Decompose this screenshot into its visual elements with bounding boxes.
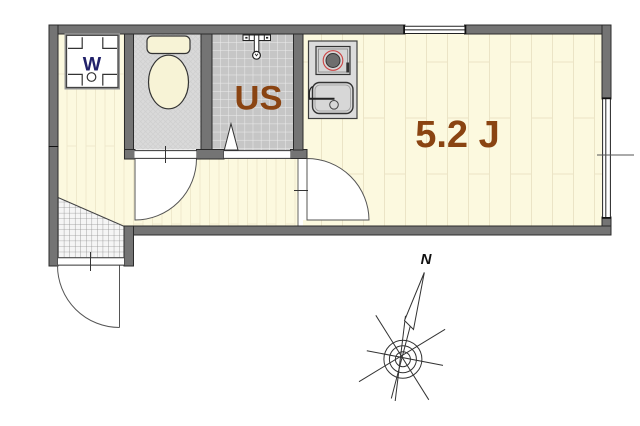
svg-text:W: W xyxy=(83,54,102,76)
svg-text:5.2 J: 5.2 J xyxy=(415,114,500,156)
svg-text:US: US xyxy=(235,79,283,117)
svg-text:N: N xyxy=(421,251,433,268)
